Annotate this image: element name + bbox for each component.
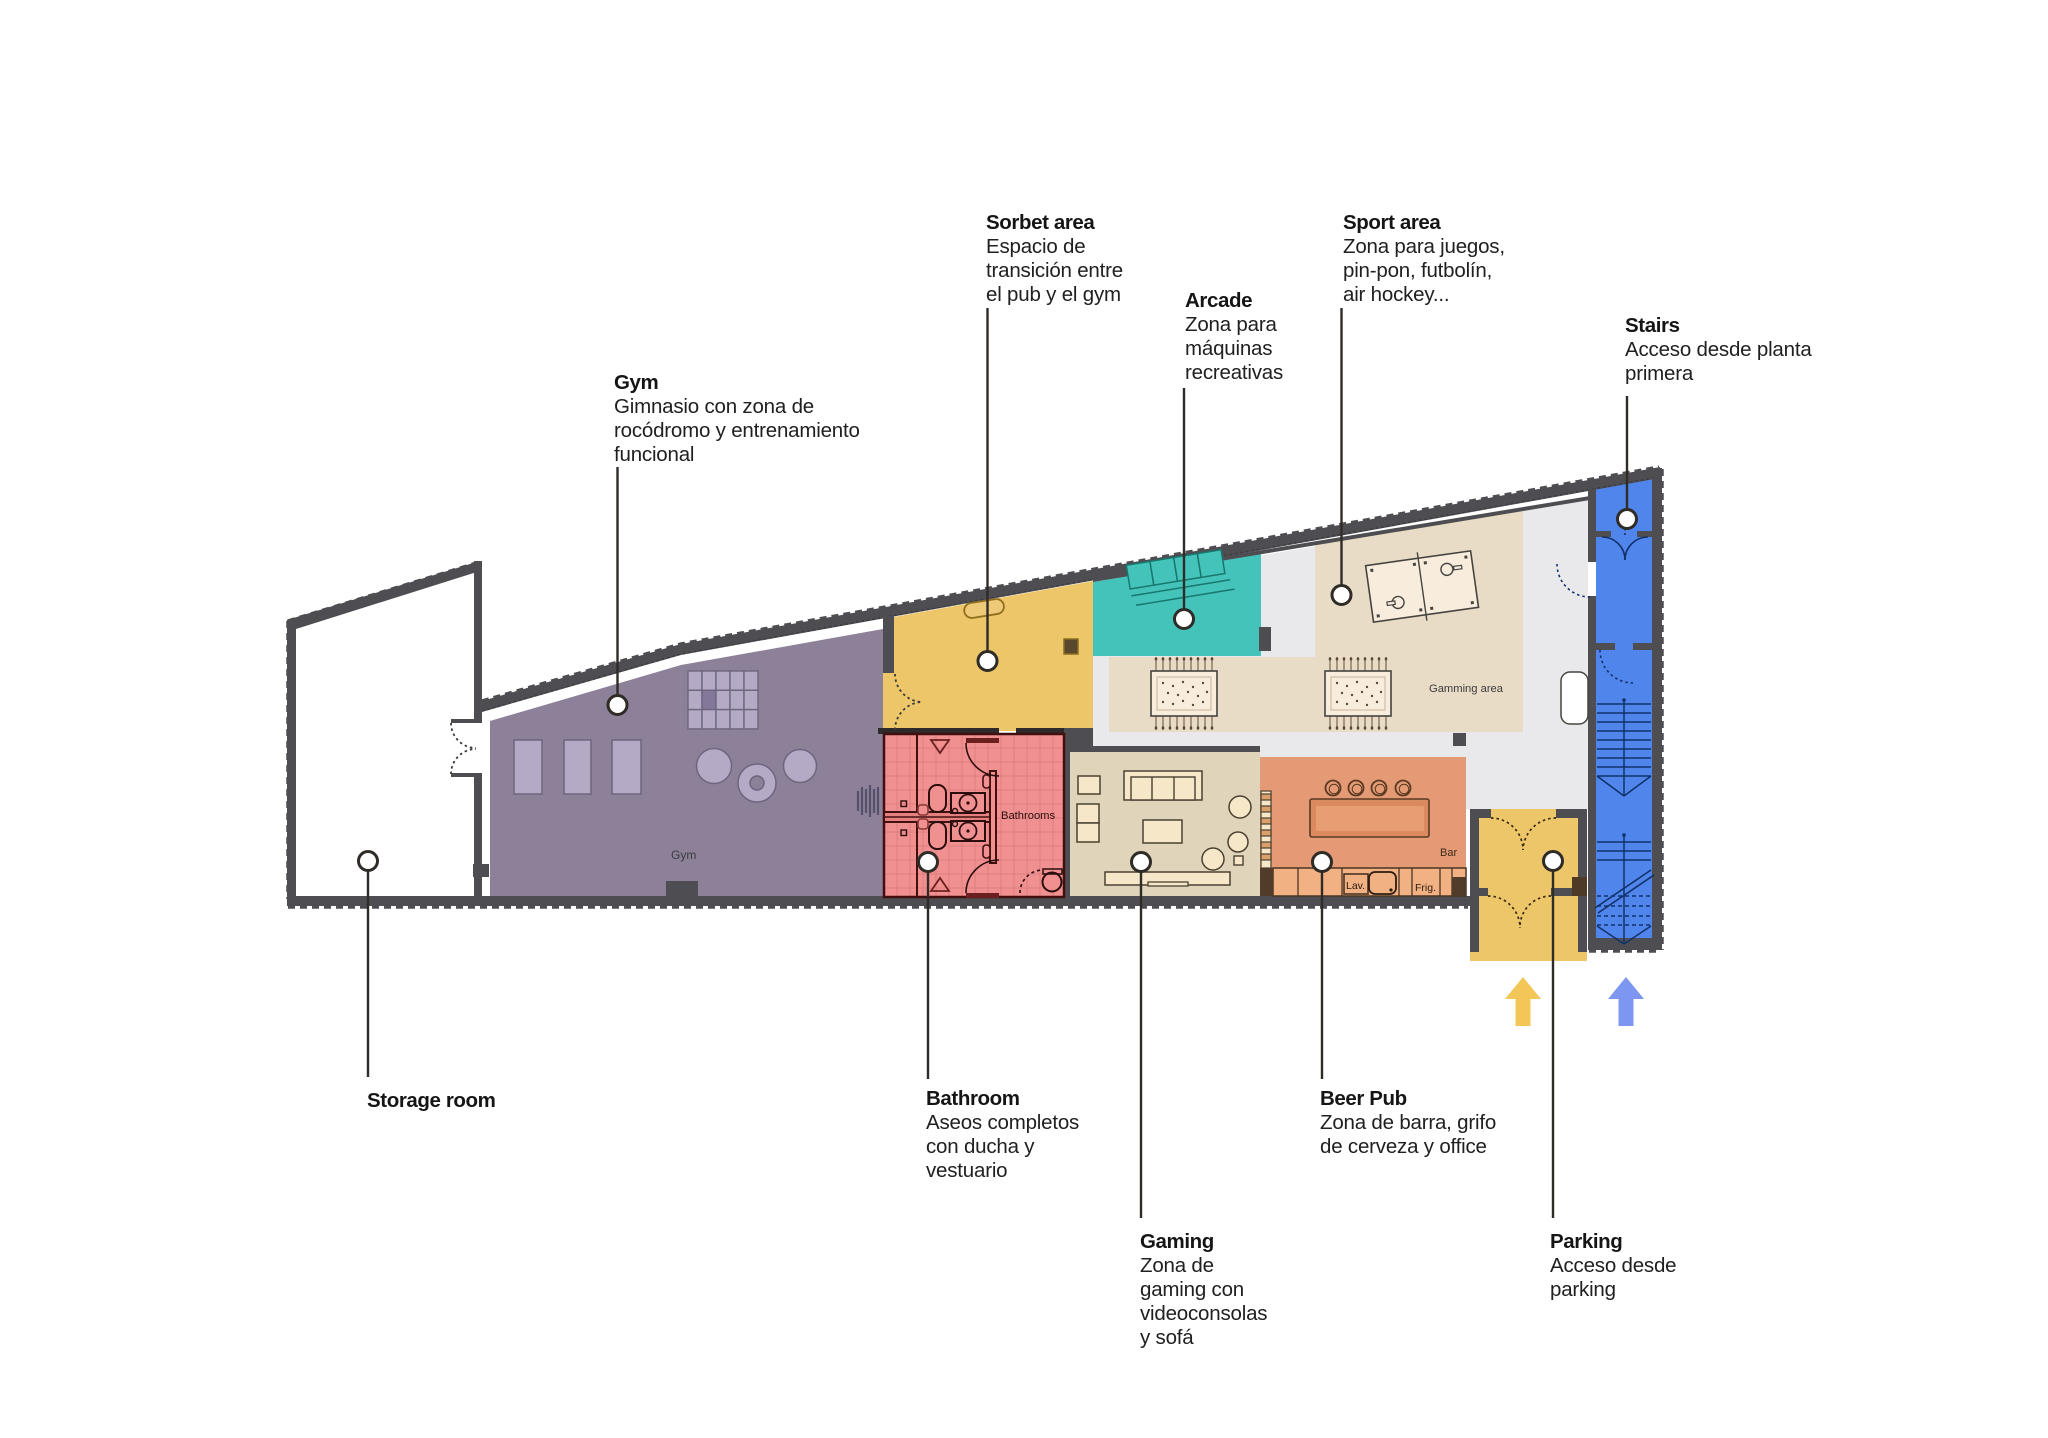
svg-text:Bathroom: Bathroom	[926, 1087, 1020, 1110]
svg-text:Zona de: Zona de	[1140, 1254, 1214, 1277]
svg-text:rocódromo y entrenamiento: rocódromo y entrenamiento	[614, 419, 860, 442]
svg-text:Gaming: Gaming	[1140, 1230, 1214, 1253]
svg-text:Gamming area: Gamming area	[1429, 683, 1504, 695]
svg-text:parking: parking	[1550, 1278, 1616, 1301]
svg-text:air hockey...: air hockey...	[1343, 283, 1449, 306]
svg-text:Gym: Gym	[614, 371, 658, 394]
svg-text:Zona para juegos,: Zona para juegos,	[1343, 235, 1505, 258]
svg-text:Bathrooms: Bathrooms	[1001, 810, 1056, 822]
svg-text:Arcade: Arcade	[1185, 289, 1252, 312]
svg-text:gaming con: gaming con	[1140, 1278, 1244, 1301]
svg-text:Gym: Gym	[671, 848, 696, 862]
svg-text:Zona para: Zona para	[1185, 313, 1277, 336]
svg-text:Espacio de: Espacio de	[986, 235, 1085, 258]
svg-text:Sport area: Sport area	[1343, 211, 1441, 234]
svg-text:de cerveza y office: de cerveza y office	[1320, 1135, 1487, 1158]
svg-text:Beer Pub: Beer Pub	[1320, 1087, 1407, 1110]
svg-text:Sorbet area: Sorbet area	[986, 211, 1095, 234]
svg-text:y sofá: y sofá	[1140, 1326, 1194, 1349]
svg-text:vestuario: vestuario	[926, 1159, 1007, 1182]
svg-text:recreativas: recreativas	[1185, 361, 1283, 384]
svg-text:Acceso desde planta: Acceso desde planta	[1625, 338, 1812, 361]
svg-text:Parking: Parking	[1550, 1230, 1622, 1253]
svg-text:Bar: Bar	[1440, 847, 1457, 859]
svg-text:Stairs: Stairs	[1625, 314, 1680, 337]
svg-text:con ducha y: con ducha y	[926, 1135, 1035, 1158]
svg-text:Acceso desde: Acceso desde	[1550, 1254, 1676, 1277]
svg-text:Storage room: Storage room	[367, 1089, 495, 1112]
svg-text:máquinas: máquinas	[1185, 337, 1272, 360]
svg-text:Lav.: Lav.	[1346, 880, 1365, 892]
svg-text:primera: primera	[1625, 362, 1694, 385]
svg-text:Aseos completos: Aseos completos	[926, 1111, 1079, 1134]
svg-text:el pub y el gym: el pub y el gym	[986, 283, 1121, 306]
svg-text:Gimnasio con zona de: Gimnasio con zona de	[614, 395, 814, 418]
svg-text:Frig.: Frig.	[1415, 882, 1436, 894]
svg-text:funcional: funcional	[614, 443, 694, 466]
svg-text:Zona de barra, grifo: Zona de barra, grifo	[1320, 1111, 1496, 1134]
svg-text:transición entre: transición entre	[986, 259, 1123, 282]
svg-text:videoconsolas: videoconsolas	[1140, 1302, 1267, 1325]
svg-text:pin-pon, futbolín,: pin-pon, futbolín,	[1343, 259, 1492, 282]
